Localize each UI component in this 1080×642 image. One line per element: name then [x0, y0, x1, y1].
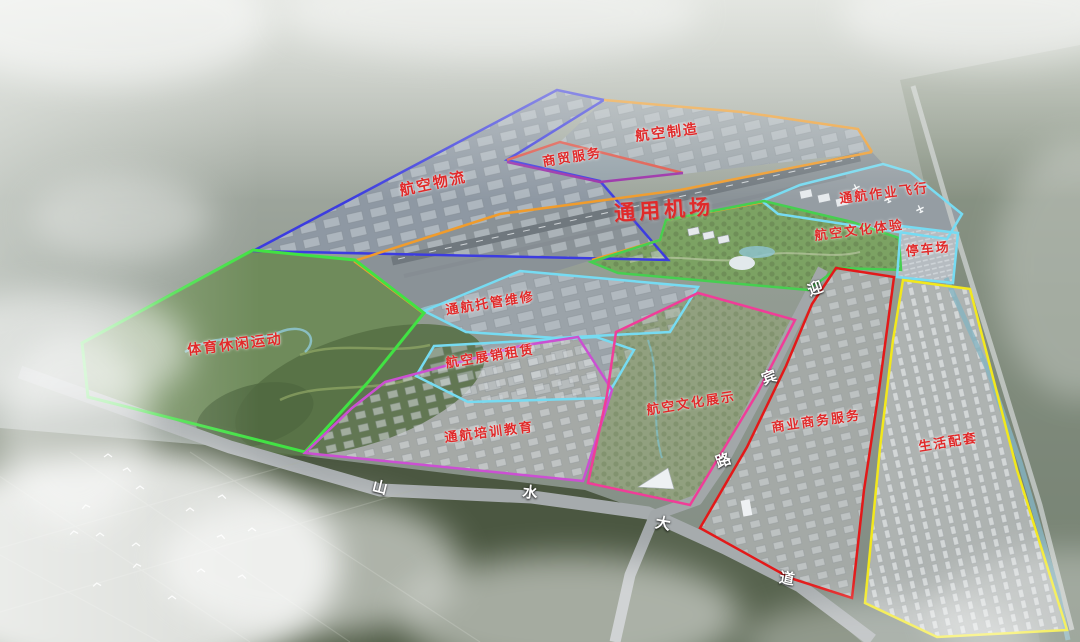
aerial-masterplan-rendering: 航空物流 商贸服务 航空制造 通用机场 通航作业飞行 航空文化体验 停车场 通航…: [0, 0, 1080, 642]
shanshui-avenue-char-2: 水: [521, 481, 538, 503]
left-haze: [0, 0, 260, 642]
park-dome-building: [729, 256, 755, 270]
masterplan-terrain: [0, 0, 1080, 642]
